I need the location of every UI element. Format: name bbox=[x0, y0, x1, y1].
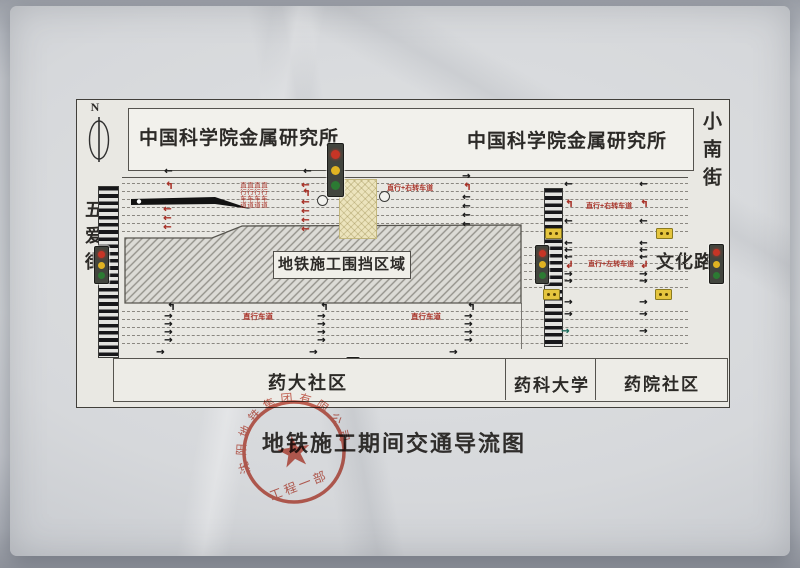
turn-arrow-icon: ↰ bbox=[165, 182, 173, 192]
lane-arrow-icon: ← bbox=[303, 167, 311, 177]
mini-signal-icon bbox=[655, 289, 672, 300]
lane-divider bbox=[122, 343, 688, 344]
lane-arrow-icon: → bbox=[564, 298, 572, 308]
mini-signal-icon bbox=[545, 228, 562, 239]
lane-label: 直行+右转车道 bbox=[586, 203, 632, 210]
lane-arrow-icon: → bbox=[639, 277, 647, 287]
lane-divider bbox=[122, 311, 688, 312]
signal-head-icon bbox=[379, 191, 390, 202]
community-divider bbox=[505, 358, 506, 400]
lane-arrow-icon: ← bbox=[301, 225, 309, 235]
road-edge-line bbox=[122, 177, 688, 178]
lane-arrow-icon: ← bbox=[639, 180, 647, 190]
signal-head-icon bbox=[317, 195, 328, 206]
community-divider bbox=[595, 358, 596, 400]
community-label-right: 药院社区 bbox=[624, 370, 700, 395]
lane-arrow-icon: → bbox=[561, 327, 569, 337]
lane-arrow-icon: → bbox=[309, 348, 317, 358]
lane-arrow-icon: → bbox=[317, 336, 325, 346]
lane-arrow-icon: → bbox=[564, 277, 572, 287]
lane-boundary-line bbox=[521, 303, 522, 349]
compass-icon bbox=[85, 116, 113, 166]
crosswalk-yellow-hatch bbox=[339, 179, 377, 239]
traffic-light-icon bbox=[327, 143, 344, 197]
lane-arrow-icon: → bbox=[462, 172, 470, 182]
lane-arrow-icon: → bbox=[564, 310, 572, 320]
lane-label: 直行车道 bbox=[259, 182, 266, 208]
mini-signal-icon bbox=[656, 228, 673, 239]
lane-label: 直行车道 bbox=[243, 313, 273, 321]
street-label-xiaonan: 小南街 bbox=[697, 111, 724, 195]
lane-arrow-icon: → bbox=[464, 336, 472, 346]
lane-arrow-icon: → bbox=[164, 336, 172, 346]
lane-arrow-icon: → bbox=[449, 348, 457, 358]
lane-arrow-icon: → bbox=[639, 298, 647, 308]
lane-label: 直行+右转车道 bbox=[387, 185, 433, 192]
compass-north-label: N bbox=[81, 100, 109, 115]
lane-divider bbox=[122, 183, 688, 184]
red-stamp: 沈阳地铁集团有限公司 ★ 工程一部 bbox=[223, 381, 365, 523]
construction-zone-label: 地铁施工围挡区域 bbox=[273, 251, 411, 279]
mini-signal-icon bbox=[543, 289, 560, 300]
lane-arrow-icon: ← bbox=[462, 220, 470, 230]
stamp-star-icon: ★ bbox=[272, 427, 316, 478]
lane-closure-taper-icon bbox=[131, 195, 253, 213]
lane-arrow-icon: ← bbox=[164, 167, 172, 177]
building-label-left: 中国科学院金属研究所 bbox=[139, 123, 339, 150]
lane-divider bbox=[122, 319, 688, 320]
turn-arrow-icon: ↰ bbox=[565, 200, 573, 210]
lane-arrow-icon: → bbox=[639, 327, 647, 337]
turn-arrow-icon: ↰ bbox=[640, 200, 648, 210]
lane-divider bbox=[122, 335, 688, 336]
lane-arrow-icon: ← bbox=[163, 223, 171, 233]
lane-arrow-icon: ← bbox=[639, 217, 647, 227]
lane-arrow-icon: ← bbox=[564, 180, 572, 190]
lane-divider bbox=[122, 327, 688, 328]
photo-of-diagram: N 中国科学院金属研究所 中国科学院金属研究所 五爱街 小南街 文化路 地铁施工 bbox=[0, 0, 800, 568]
lane-label: 直行车道 bbox=[238, 182, 245, 208]
lane-arrow-icon: → bbox=[639, 310, 647, 320]
lane-divider bbox=[122, 215, 688, 216]
lane-arrow-icon: → bbox=[156, 348, 164, 358]
lane-label: 直行车道 bbox=[411, 313, 441, 321]
lane-label: 直行+左转车道 bbox=[588, 261, 634, 268]
lane-label: 直行车道 bbox=[252, 182, 259, 208]
lane-label: 直行车道 bbox=[245, 182, 252, 208]
community-label-middle: 药科大学 bbox=[514, 371, 590, 396]
traffic-light-icon bbox=[709, 244, 724, 284]
lane-arrow-icon: ← bbox=[564, 217, 572, 227]
building-label-right: 中国科学院金属研究所 bbox=[467, 126, 667, 153]
traffic-light-icon bbox=[94, 246, 109, 284]
traffic-light-icon bbox=[535, 245, 549, 284]
